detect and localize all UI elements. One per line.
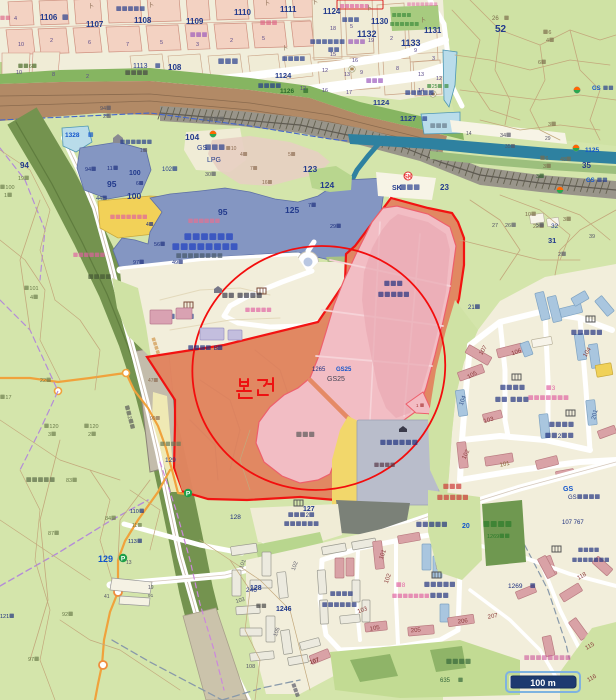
svg-text:3: 3 (548, 122, 551, 128)
svg-text:3: 3 (563, 217, 566, 223)
svg-text:3: 3 (536, 174, 539, 180)
svg-text:17: 17 (5, 395, 11, 401)
svg-text:35: 35 (505, 144, 511, 150)
svg-text:GS: GS (568, 495, 577, 501)
svg-text:26: 26 (505, 223, 511, 229)
svg-text:14: 14 (466, 131, 472, 137)
svg-text:22: 22 (40, 378, 46, 384)
svg-text:GS25: GS25 (336, 367, 352, 373)
svg-text:1: 1 (4, 193, 7, 199)
svg-text:3: 3 (432, 56, 435, 62)
svg-text:2: 2 (86, 74, 89, 80)
svg-text:LPG: LPG (207, 157, 221, 164)
svg-text:29: 29 (545, 136, 551, 142)
svg-text:4: 4 (240, 152, 243, 158)
svg-text:41: 41 (104, 594, 110, 600)
svg-text:9: 9 (414, 48, 417, 54)
svg-text:5: 5 (536, 223, 539, 229)
svg-text:1124: 1124 (323, 7, 341, 16)
svg-text:47: 47 (148, 378, 154, 384)
svg-text:6: 6 (136, 181, 139, 187)
svg-text:2: 2 (103, 114, 106, 120)
svg-text:124: 124 (320, 180, 334, 190)
svg-text:1133: 1133 (401, 38, 421, 48)
svg-text:GS: GS (592, 86, 601, 92)
svg-text:97: 97 (133, 260, 139, 266)
svg-text:95: 95 (107, 179, 117, 189)
svg-text:16: 16 (322, 88, 328, 94)
svg-text:94: 94 (85, 167, 91, 173)
svg-text:94: 94 (20, 161, 29, 170)
svg-text:12: 12 (436, 76, 442, 82)
svg-text:5: 5 (160, 40, 163, 46)
svg-text:10: 10 (525, 212, 531, 218)
svg-text:1130: 1130 (371, 17, 389, 26)
svg-text:P: P (186, 491, 191, 498)
svg-text:5: 5 (262, 36, 265, 42)
svg-text:87: 87 (48, 531, 54, 537)
svg-text:635: 635 (440, 678, 451, 684)
svg-text:35: 35 (582, 161, 591, 170)
svg-text:1125: 1125 (585, 147, 599, 154)
svg-text:1269: 1269 (508, 583, 523, 590)
svg-text:205: 205 (411, 627, 422, 634)
svg-text:6: 6 (545, 156, 548, 162)
svg-text:6: 6 (538, 60, 541, 66)
svg-text:卜: 卜 (366, 5, 372, 12)
svg-text:7: 7 (308, 203, 311, 209)
svg-text:SK: SK (404, 175, 413, 181)
svg-text:1107: 1107 (86, 20, 104, 29)
svg-text:83: 83 (66, 478, 72, 484)
svg-text:1127: 1127 (400, 114, 416, 123)
svg-text:1111: 1111 (280, 5, 297, 14)
svg-text:92: 92 (62, 612, 68, 618)
svg-text:卜: 卜 (148, 2, 154, 9)
svg-text:5: 5 (288, 152, 291, 158)
svg-text:95: 95 (218, 207, 228, 217)
svg-text:2: 2 (88, 432, 91, 438)
svg-text:32: 32 (551, 223, 559, 230)
svg-text:1269: 1269 (487, 534, 499, 540)
svg-text:2: 2 (558, 433, 562, 440)
svg-text:101: 101 (29, 286, 38, 292)
svg-text:102: 102 (162, 167, 173, 173)
svg-text:16: 16 (262, 180, 268, 186)
svg-text:2: 2 (230, 38, 233, 44)
svg-text:1131: 1131 (424, 26, 442, 35)
svg-text:120: 120 (89, 424, 98, 430)
svg-text:3: 3 (543, 164, 546, 170)
svg-text:34: 34 (500, 133, 506, 139)
svg-text:100: 100 (5, 185, 14, 191)
svg-text:19: 19 (148, 585, 154, 591)
svg-text:44: 44 (96, 196, 102, 202)
svg-text:卜: 卜 (264, 0, 270, 7)
svg-text:100: 100 (129, 170, 141, 177)
svg-text:2: 2 (50, 38, 53, 44)
svg-text:108: 108 (246, 664, 255, 670)
svg-text:27: 27 (492, 223, 498, 229)
svg-text:31: 31 (548, 236, 556, 245)
svg-text:2: 2 (558, 252, 561, 258)
svg-text:1246: 1246 (276, 606, 292, 613)
svg-text:23: 23 (440, 183, 449, 192)
svg-text:49: 49 (172, 260, 178, 266)
svg-text:4: 4 (30, 295, 33, 301)
svg-text:127: 127 (303, 506, 315, 513)
svg-text:1113: 1113 (133, 63, 148, 70)
svg-text:8: 8 (52, 72, 55, 78)
svg-text:10: 10 (18, 42, 24, 48)
svg-text:6: 6 (29, 64, 32, 70)
svg-text:94: 94 (100, 106, 106, 112)
svg-text:16: 16 (352, 58, 358, 64)
svg-text:26: 26 (492, 16, 499, 22)
svg-text:4: 4 (146, 222, 149, 228)
svg-text:17: 17 (346, 90, 352, 96)
svg-text:110: 110 (130, 509, 139, 515)
svg-text:卜: 卜 (282, 45, 288, 52)
svg-text:B: B (214, 346, 218, 352)
svg-text:128: 128 (230, 514, 241, 521)
svg-text:3: 3 (48, 432, 51, 438)
svg-text:113: 113 (128, 539, 137, 545)
svg-text:30: 30 (205, 172, 211, 178)
svg-text:1109: 1109 (186, 17, 204, 26)
svg-text:10: 10 (16, 70, 22, 76)
svg-text:56: 56 (154, 242, 160, 248)
svg-text:1124: 1124 (373, 98, 390, 107)
svg-text:卜: 卜 (88, 3, 94, 10)
svg-text:GS: GS (563, 486, 573, 493)
svg-text:104: 104 (185, 132, 199, 142)
svg-text:91: 91 (148, 593, 154, 599)
svg-text:7: 7 (250, 166, 253, 172)
svg-text:108: 108 (168, 63, 182, 72)
svg-text:1265: 1265 (312, 367, 326, 373)
svg-text:卜: 卜 (420, 17, 426, 24)
svg-text:121: 121 (0, 614, 9, 620)
svg-text:13: 13 (418, 72, 424, 78)
svg-text:2: 2 (390, 36, 393, 42)
svg-text:125: 125 (285, 205, 299, 215)
svg-text:129: 129 (165, 457, 176, 464)
svg-text:15: 15 (330, 52, 336, 58)
svg-text:52: 52 (495, 24, 507, 35)
svg-text:1328: 1328 (65, 132, 80, 139)
svg-text:12: 12 (322, 68, 328, 74)
svg-text:1126: 1126 (280, 88, 294, 95)
svg-text:11: 11 (107, 166, 113, 172)
svg-text:29: 29 (330, 224, 336, 230)
svg-text:48: 48 (560, 157, 566, 163)
svg-text:3: 3 (196, 42, 199, 48)
svg-text:1106: 1106 (40, 13, 58, 22)
svg-text:1108: 1108 (134, 16, 152, 25)
svg-text:GS: GS (586, 178, 595, 184)
svg-text:128: 128 (250, 585, 262, 592)
svg-text:1: 1 (140, 148, 143, 154)
svg-text:107 767: 107 767 (562, 520, 584, 526)
svg-text:1124: 1124 (275, 71, 292, 80)
svg-text:卜: 卜 (312, 0, 318, 6)
svg-text:100 m: 100 m (530, 678, 556, 688)
svg-text:129: 129 (98, 554, 113, 564)
svg-text:18: 18 (330, 26, 336, 32)
svg-text:120: 120 (49, 424, 58, 430)
svg-text:123: 123 (303, 164, 317, 174)
svg-text:6: 6 (88, 40, 91, 46)
svg-text:12: 12 (300, 86, 306, 92)
svg-text:GS25: GS25 (327, 376, 345, 383)
svg-text:19: 19 (18, 176, 24, 182)
svg-text:5: 5 (350, 24, 353, 30)
svg-text:8: 8 (396, 66, 399, 72)
svg-text:13: 13 (126, 560, 132, 566)
svg-text:10: 10 (231, 146, 237, 152)
svg-text:20: 20 (462, 523, 470, 530)
svg-text:97: 97 (28, 657, 34, 663)
svg-text:11: 11 (132, 523, 137, 529)
svg-text:84: 84 (105, 516, 111, 522)
svg-text:6: 6 (548, 30, 551, 36)
svg-text:21: 21 (468, 305, 475, 311)
svg-text:19: 19 (368, 38, 374, 44)
svg-text:25: 25 (432, 84, 438, 90)
svg-text:7: 7 (126, 42, 129, 48)
svg-text:39: 39 (589, 234, 595, 240)
svg-text:4: 4 (546, 38, 549, 44)
svg-text:100: 100 (127, 191, 141, 201)
svg-text:4: 4 (14, 16, 17, 22)
svg-text:1110: 1110 (234, 8, 251, 17)
svg-text:9: 9 (360, 70, 363, 76)
svg-text:13: 13 (344, 72, 350, 78)
svg-text:99: 99 (150, 416, 156, 422)
